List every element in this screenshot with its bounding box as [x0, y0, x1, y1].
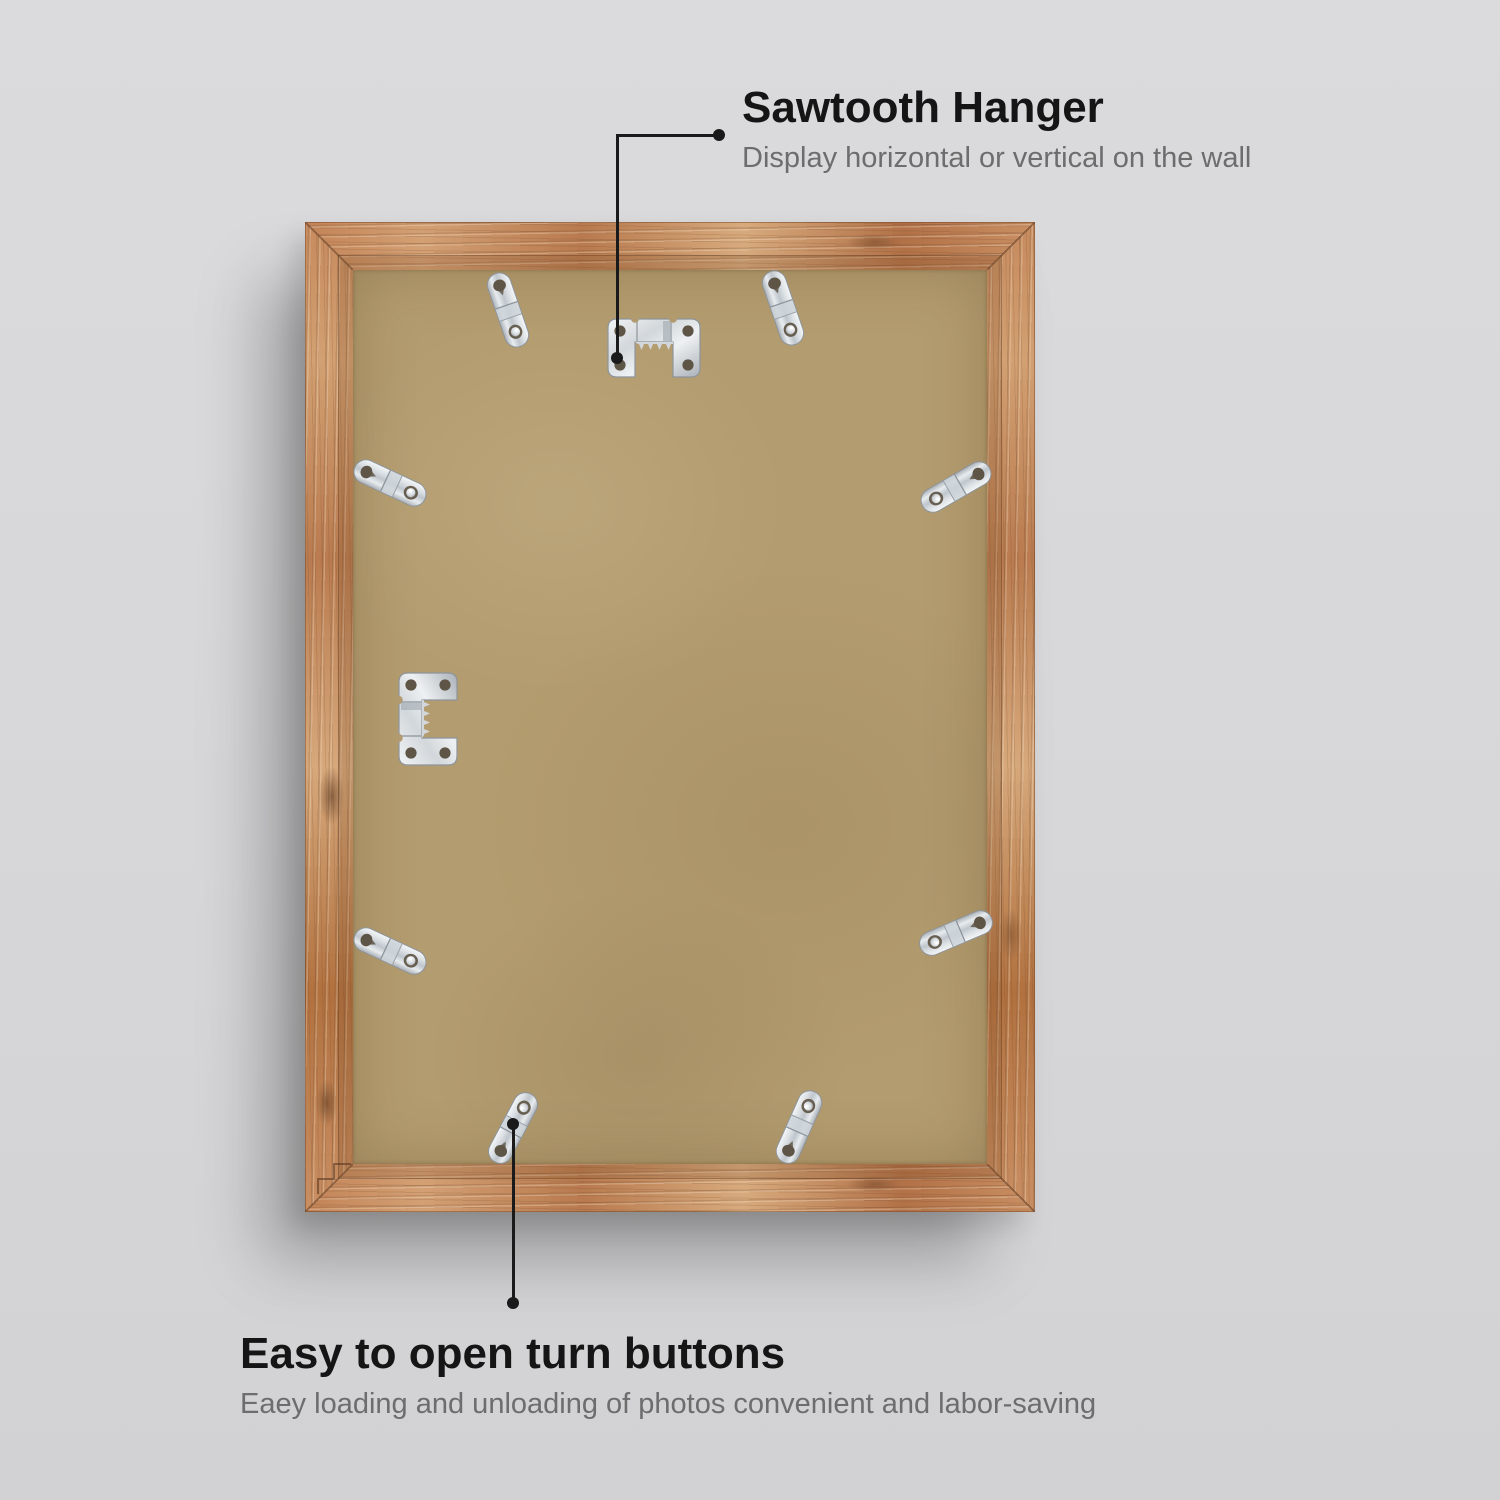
sawtooth-annotation-title: Sawtooth Hanger — [742, 84, 1362, 132]
sawtooth-hanger-icon — [607, 318, 701, 378]
wood-corner-mark — [333, 1163, 351, 1180]
frame-wood-top — [305, 222, 1035, 270]
sawtooth-annotation-subtitle: Display horizontal or vertical on the wa… — [742, 142, 1362, 175]
frame-wood-bottom — [305, 1164, 1035, 1212]
turn-button-annotation: Easy to open turn buttons Eaey loading a… — [240, 1330, 1200, 1421]
frame-wood-left — [305, 222, 353, 1212]
frame-wood-right — [987, 222, 1035, 1212]
callout-dot — [507, 1118, 519, 1130]
callout-line-vertical — [616, 134, 619, 360]
callout-dot — [611, 352, 623, 364]
picture-frame-back — [305, 222, 1035, 1212]
sawtooth-hanger-icon — [398, 672, 458, 766]
callout-line-vertical — [512, 1124, 515, 1304]
wood-corner-mark — [317, 1178, 333, 1194]
callout-dot — [713, 129, 725, 141]
callout-line-horizontal — [617, 134, 720, 137]
sawtooth-annotation: Sawtooth Hanger Display horizontal or ve… — [742, 84, 1362, 175]
turn-button-annotation-subtitle: Eaey loading and unloading of photos con… — [240, 1388, 1200, 1421]
product-image-stage: Sawtooth Hanger Display horizontal or ve… — [0, 0, 1500, 1500]
turn-button-annotation-title: Easy to open turn buttons — [240, 1330, 1200, 1378]
callout-dot — [507, 1297, 519, 1309]
